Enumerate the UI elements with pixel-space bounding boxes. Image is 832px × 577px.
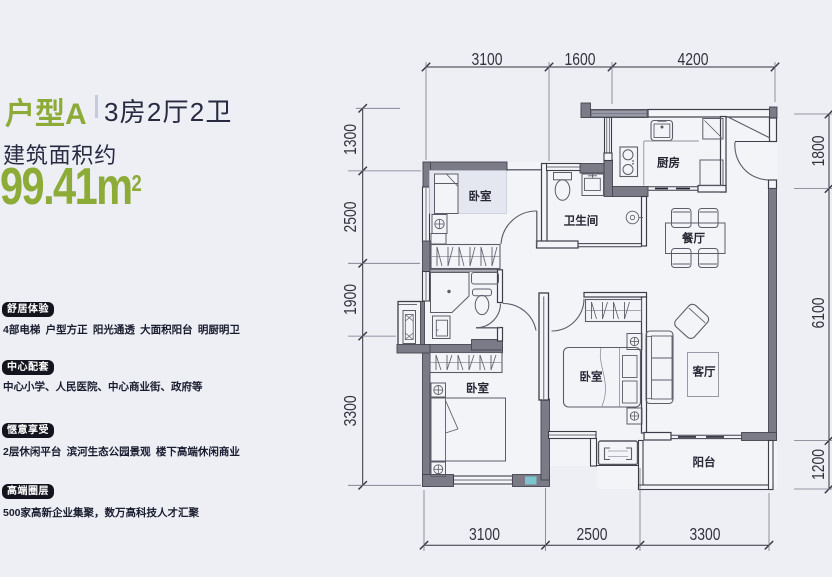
svg-text:3300: 3300 bbox=[340, 395, 360, 426]
svg-text:客厅: 客厅 bbox=[692, 365, 716, 379]
svg-text:阳台: 阳台 bbox=[693, 455, 716, 469]
svg-text:卧室: 卧室 bbox=[469, 189, 492, 203]
svg-text:1200: 1200 bbox=[808, 449, 828, 480]
svg-text:6100: 6100 bbox=[808, 297, 828, 328]
svg-text:餐厅: 餐厅 bbox=[681, 231, 705, 245]
svg-text:1300: 1300 bbox=[340, 124, 360, 155]
svg-text:厨房: 厨房 bbox=[657, 156, 680, 170]
svg-text:2500: 2500 bbox=[577, 524, 608, 544]
svg-text:卧室: 卧室 bbox=[580, 370, 603, 384]
svg-text:卫生间: 卫生间 bbox=[564, 214, 599, 228]
svg-text:3100: 3100 bbox=[469, 524, 500, 544]
svg-text:1800: 1800 bbox=[808, 135, 828, 166]
svg-text:卧室: 卧室 bbox=[466, 381, 489, 395]
svg-text:3100: 3100 bbox=[472, 49, 503, 69]
svg-text:1600: 1600 bbox=[565, 49, 596, 69]
svg-text:4200: 4200 bbox=[678, 49, 709, 69]
svg-text:1900: 1900 bbox=[340, 284, 360, 315]
svg-text:2500: 2500 bbox=[340, 201, 360, 232]
svg-text:3300: 3300 bbox=[690, 524, 721, 544]
